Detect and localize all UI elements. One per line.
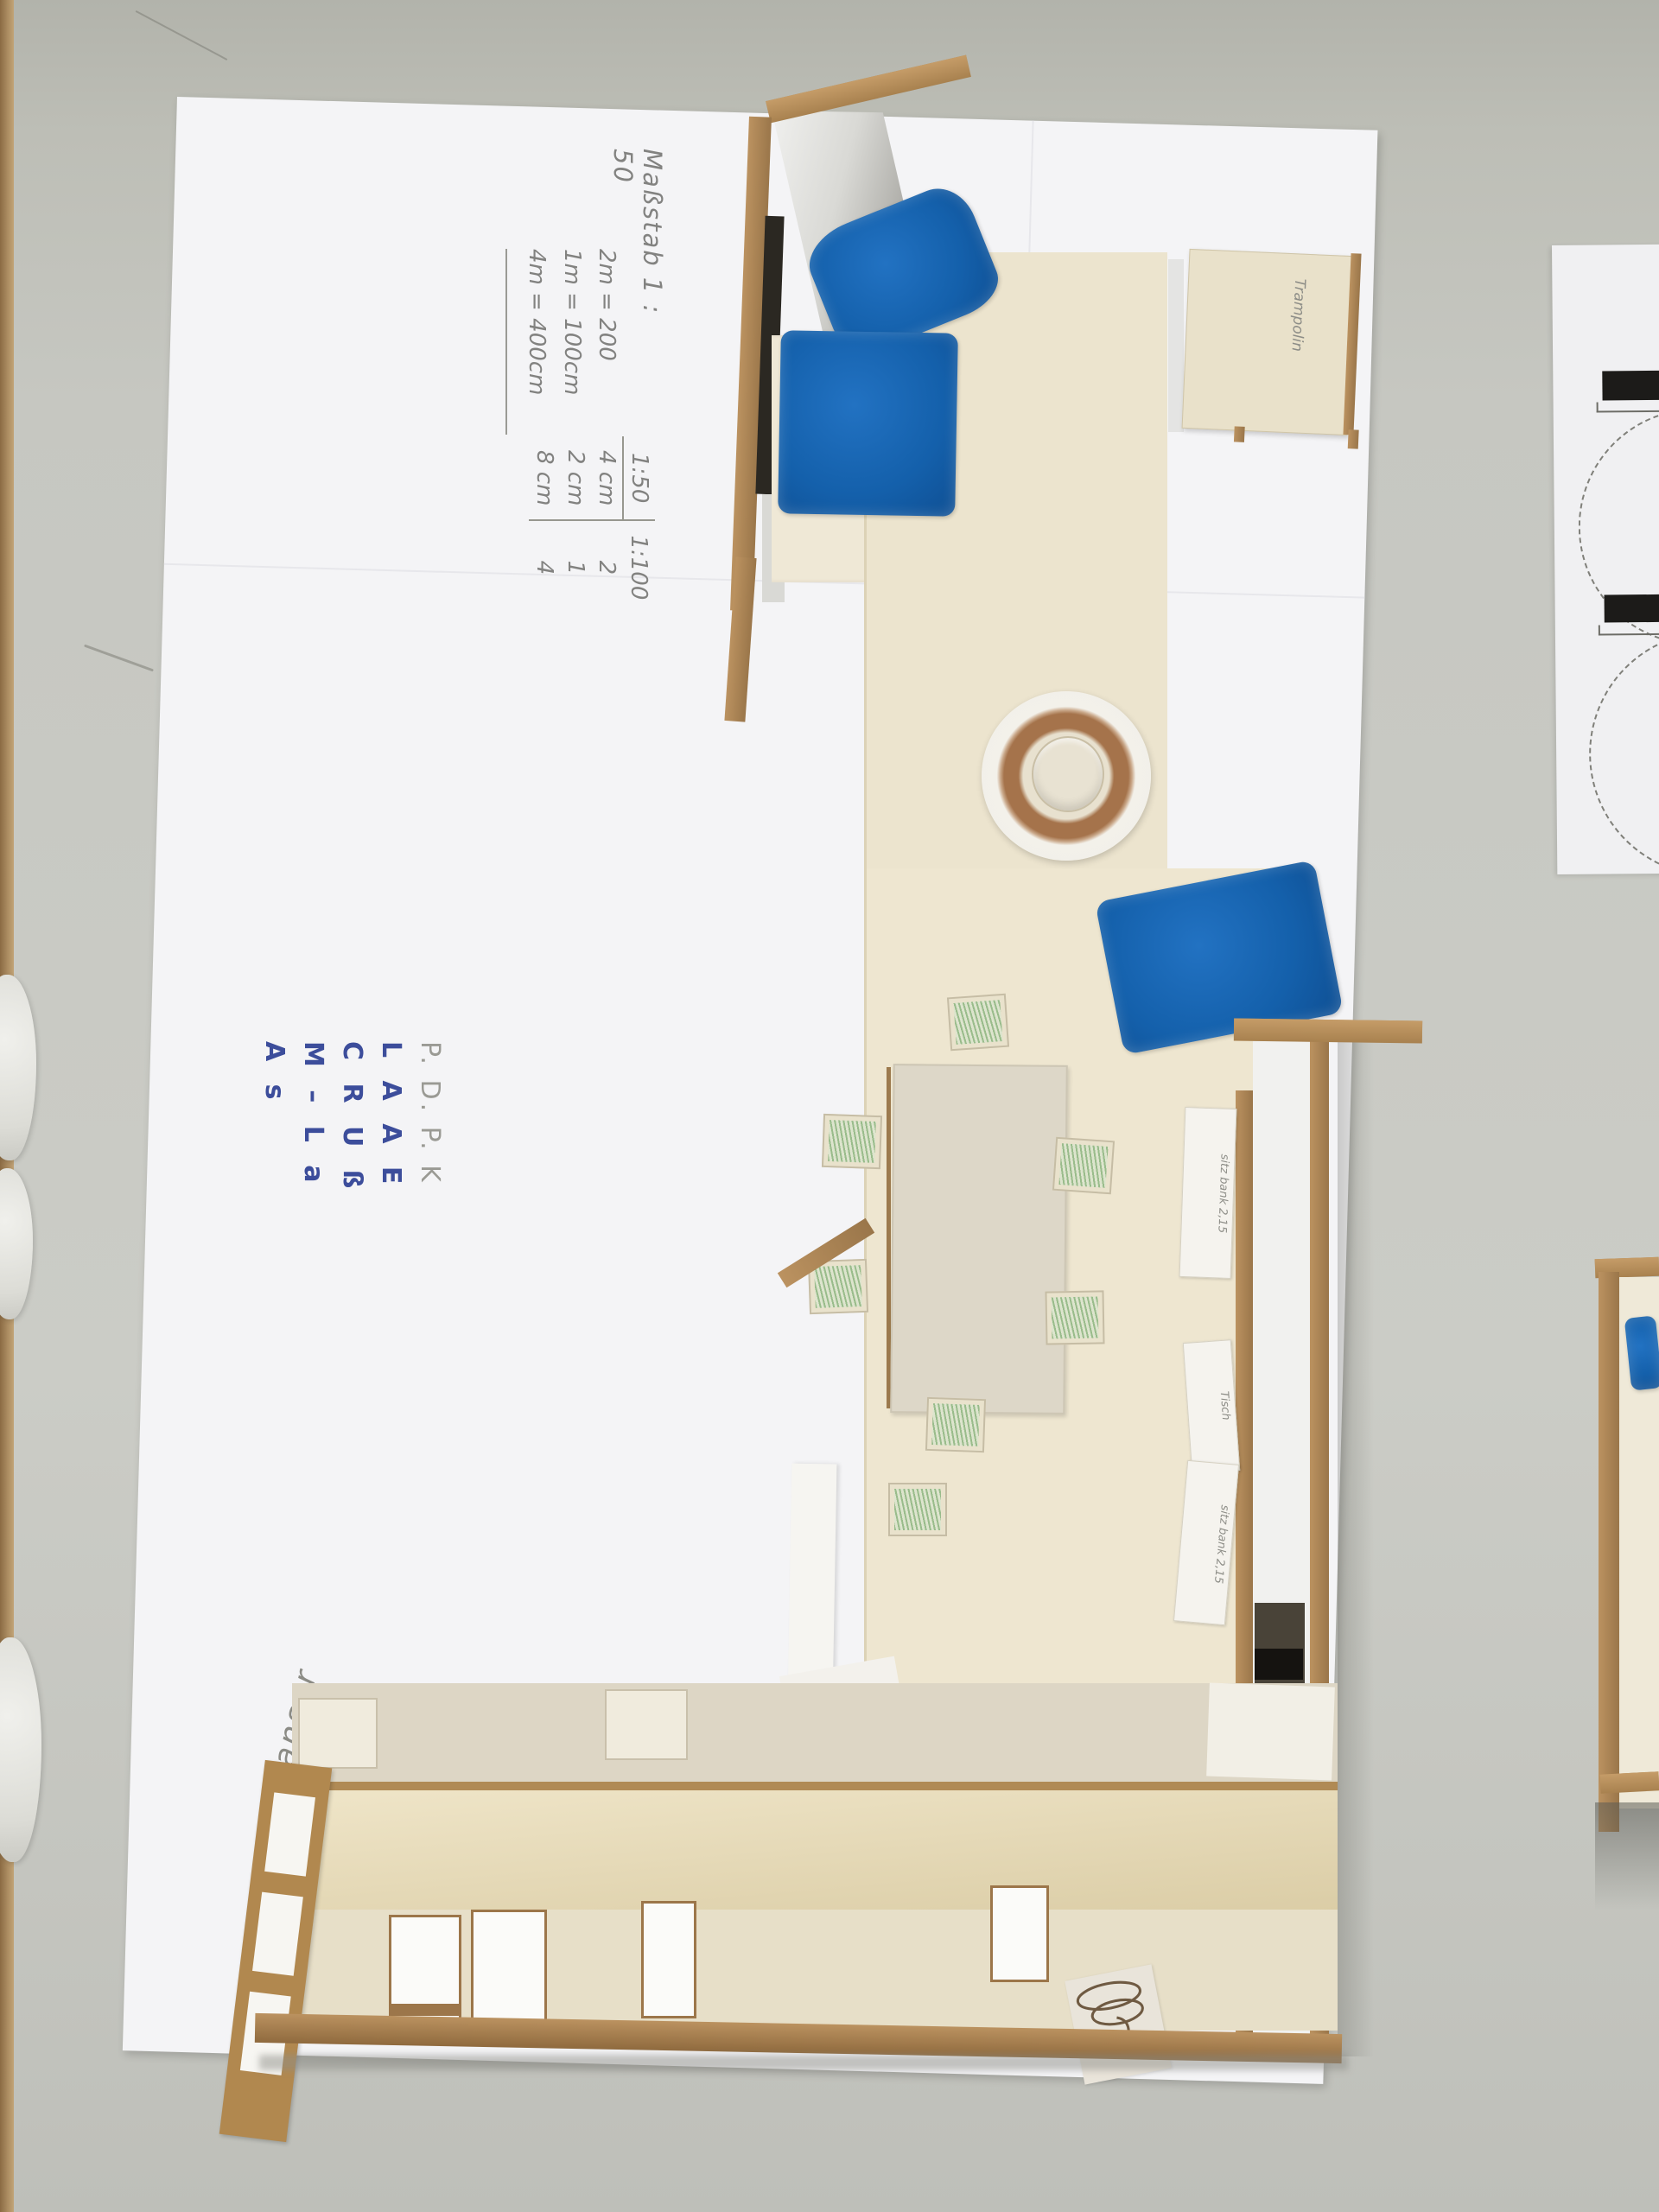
scale-table-header: 1:100: [623, 520, 655, 613]
stool: [947, 994, 1009, 1052]
scale-table-cell: 4 cm: [591, 436, 623, 520]
bottom-wing-top-band: [292, 1683, 1338, 1789]
fabric-blob: [0, 1168, 33, 1319]
names-row: C R U ß: [333, 1041, 372, 1257]
bench-label: sitz bank 2,15: [1184, 1111, 1232, 1274]
box-gap-shadow: [1168, 259, 1184, 432]
trampolin-box: Trampolin: [1182, 249, 1356, 435]
label-strip-bench-1: sitz bank 2,15: [1179, 1107, 1237, 1279]
model-bottom-shadow: [259, 2055, 1348, 2070]
window-slot: [264, 1792, 315, 1876]
stool-green-scribble: [828, 1120, 876, 1163]
stool: [925, 1397, 986, 1452]
trampolin-label: Trampolin: [1288, 278, 1309, 352]
photo-architecture-model: Maßstab 1 : 50 2m = 200 1m = 100cm 4m = …: [0, 0, 1659, 2212]
scale-table-cell: 1: [560, 520, 591, 613]
window-cutout: [471, 1910, 547, 2032]
scale-table-cell: 2 cm: [560, 436, 591, 520]
table-scratch: [84, 645, 154, 672]
fabric-blob: [0, 975, 36, 1160]
fabric-blob: [0, 1637, 41, 1862]
names-row: A s: [255, 1041, 294, 1257]
second-model-shadow: [1595, 1802, 1659, 1910]
names-block: P. D. P. K L A A E C R U ß M – L a A s: [255, 1041, 449, 1257]
plan-door-jamb: [1599, 625, 1659, 636]
names-row: L A A E: [372, 1041, 410, 1257]
blue-felt-pool-2: [778, 330, 958, 517]
stool: [1052, 1137, 1115, 1195]
conversion-line: 2m = 200: [589, 249, 624, 435]
plan-door-jamb: [1597, 402, 1659, 413]
model-table: [890, 1064, 1068, 1414]
stool-green-scribble: [1058, 1143, 1108, 1188]
printed-plan-sheet: [1552, 245, 1659, 874]
scale-table-cell: 8 cm: [529, 436, 560, 520]
mdf-second-model-bar: [1599, 1771, 1659, 1794]
conversion-line: 4m = 400cm: [519, 249, 554, 435]
mdf-t-bar: [1234, 1018, 1422, 1043]
stool: [1045, 1290, 1104, 1344]
scale-table-cell: 2: [591, 520, 623, 613]
scale-table: 1:50 1:100 4 cm 2 2 cm 1 8 cm 4: [529, 436, 655, 613]
mdf-second-model-wall: [1599, 1272, 1619, 1832]
model-side-shadow: [1338, 1037, 1374, 2056]
inner-wall-face: [292, 1790, 1338, 1911]
conversion-line: 1m = 100cm: [554, 249, 588, 435]
roof-white-patch: [1206, 1683, 1335, 1781]
white-partition-wall: [788, 1464, 837, 1702]
table-label: Tisch: [1187, 1344, 1236, 1470]
plan-wall-mark: [1255, 1649, 1303, 1680]
stool-green-scribble: [953, 1000, 1002, 1045]
names-initials: P. D. P. K: [410, 1041, 449, 1257]
roof-opening: [298, 1698, 378, 1769]
stool-green-scribble: [1052, 1297, 1099, 1339]
scale-table-header: 1:50: [623, 436, 655, 520]
scale-table-cell: 4: [529, 520, 560, 613]
window-slot: [252, 1892, 303, 1976]
plan-wall-mark: [1605, 594, 1659, 623]
stool: [888, 1483, 947, 1536]
mdf-box-foot: [1348, 429, 1359, 449]
table-scratch: [136, 10, 228, 60]
window-cutout: [641, 1901, 696, 2018]
window-mullion: [391, 2004, 459, 2016]
stool-green-scribble: [894, 1489, 941, 1530]
names-row: M – L a: [294, 1041, 333, 1257]
column-base-circle: [982, 691, 1151, 861]
scale-conversions: 2m = 200 1m = 100cm 4m = 400cm: [505, 249, 624, 435]
column-cylinder: [1032, 736, 1104, 812]
bench-label: sitz bank 2,15: [1178, 1465, 1234, 1621]
mdf-box-foot: [1234, 426, 1245, 442]
stool-green-scribble: [931, 1403, 980, 1446]
label-strip-table: Tisch: [1183, 1339, 1240, 1474]
roof-opening: [605, 1689, 688, 1760]
window-cutout: [990, 1885, 1049, 1982]
stool: [822, 1114, 882, 1169]
plan-wall-mark: [1602, 371, 1659, 401]
stool-green-scribble: [814, 1265, 862, 1308]
plan-door-arc: [1588, 630, 1659, 874]
